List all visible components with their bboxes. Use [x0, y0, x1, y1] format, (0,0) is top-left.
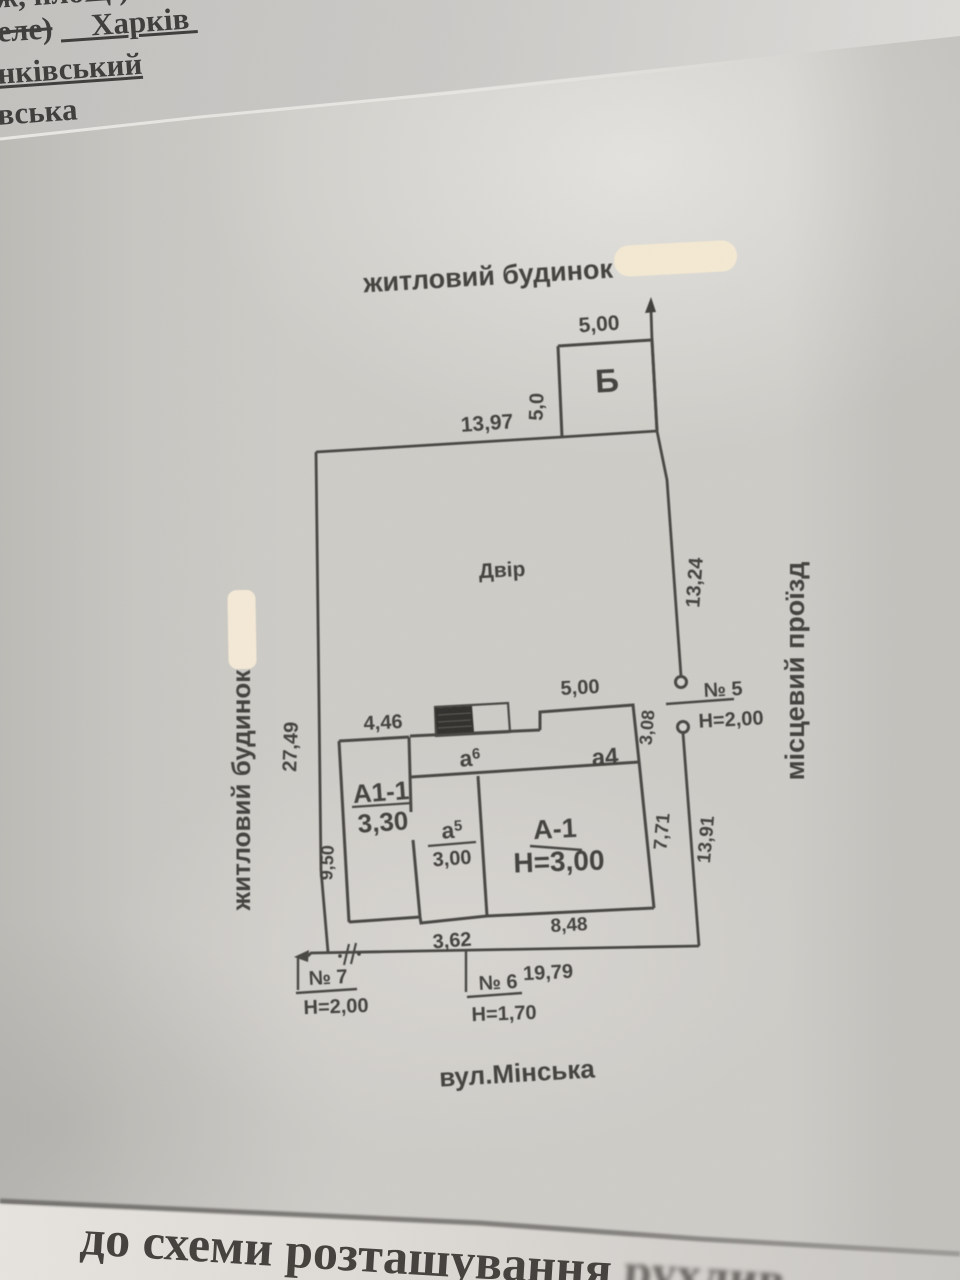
svg-text:місцевий проїзд: місцевий проїзд	[780, 562, 810, 781]
svg-text:9,50: 9,50	[316, 845, 338, 881]
svg-text:5,00: 5,00	[578, 312, 620, 338]
svg-text:8,48: 8,48	[550, 914, 588, 937]
svg-text:А1-1: А1-1	[352, 775, 410, 809]
svg-text:27,49: 27,49	[279, 721, 303, 772]
svg-text:Б: Б	[594, 361, 620, 399]
svg-text:№ 5: № 5	[703, 678, 743, 702]
svg-text:Двір: Двір	[478, 558, 526, 583]
svg-text:H=2,00: H=2,00	[698, 707, 764, 732]
svg-text:13,97: 13,97	[460, 410, 514, 437]
svg-text:3,00: 3,00	[432, 847, 472, 872]
svg-text:7,71: 7,71	[650, 812, 674, 851]
svg-text:житловий будинок: житловий будинок	[226, 669, 256, 912]
svg-text:№ 7: № 7	[308, 966, 348, 990]
svg-text:а4: а4	[591, 743, 620, 772]
svg-text:а5: а5	[441, 816, 464, 843]
svg-text:5,00: 5,00	[560, 676, 600, 700]
svg-text:5,0: 5,0	[526, 393, 549, 422]
svg-text:19,79: 19,79	[522, 961, 573, 986]
svg-text:а6: а6	[459, 744, 482, 771]
svg-text:А-1: А-1	[532, 813, 577, 845]
svg-text:3,30: 3,30	[357, 805, 410, 838]
svg-text:H=1,70: H=1,70	[471, 1002, 537, 1026]
svg-text:13,91: 13,91	[694, 814, 719, 864]
svg-text:H=2,00: H=2,00	[303, 995, 369, 1019]
svg-text:3,62: 3,62	[432, 929, 472, 954]
svg-text:№ 6: № 6	[478, 971, 518, 995]
svg-text:13,24: 13,24	[682, 556, 707, 608]
svg-text:вул.Мінська: вул.Мінська	[438, 1053, 596, 1092]
svg-text:H=3,00: H=3,00	[513, 844, 605, 878]
svg-text:3,08: 3,08	[636, 709, 659, 746]
svg-text:житловий будинок: житловий будинок	[361, 254, 614, 299]
svg-text:4,46: 4,46	[363, 711, 403, 735]
